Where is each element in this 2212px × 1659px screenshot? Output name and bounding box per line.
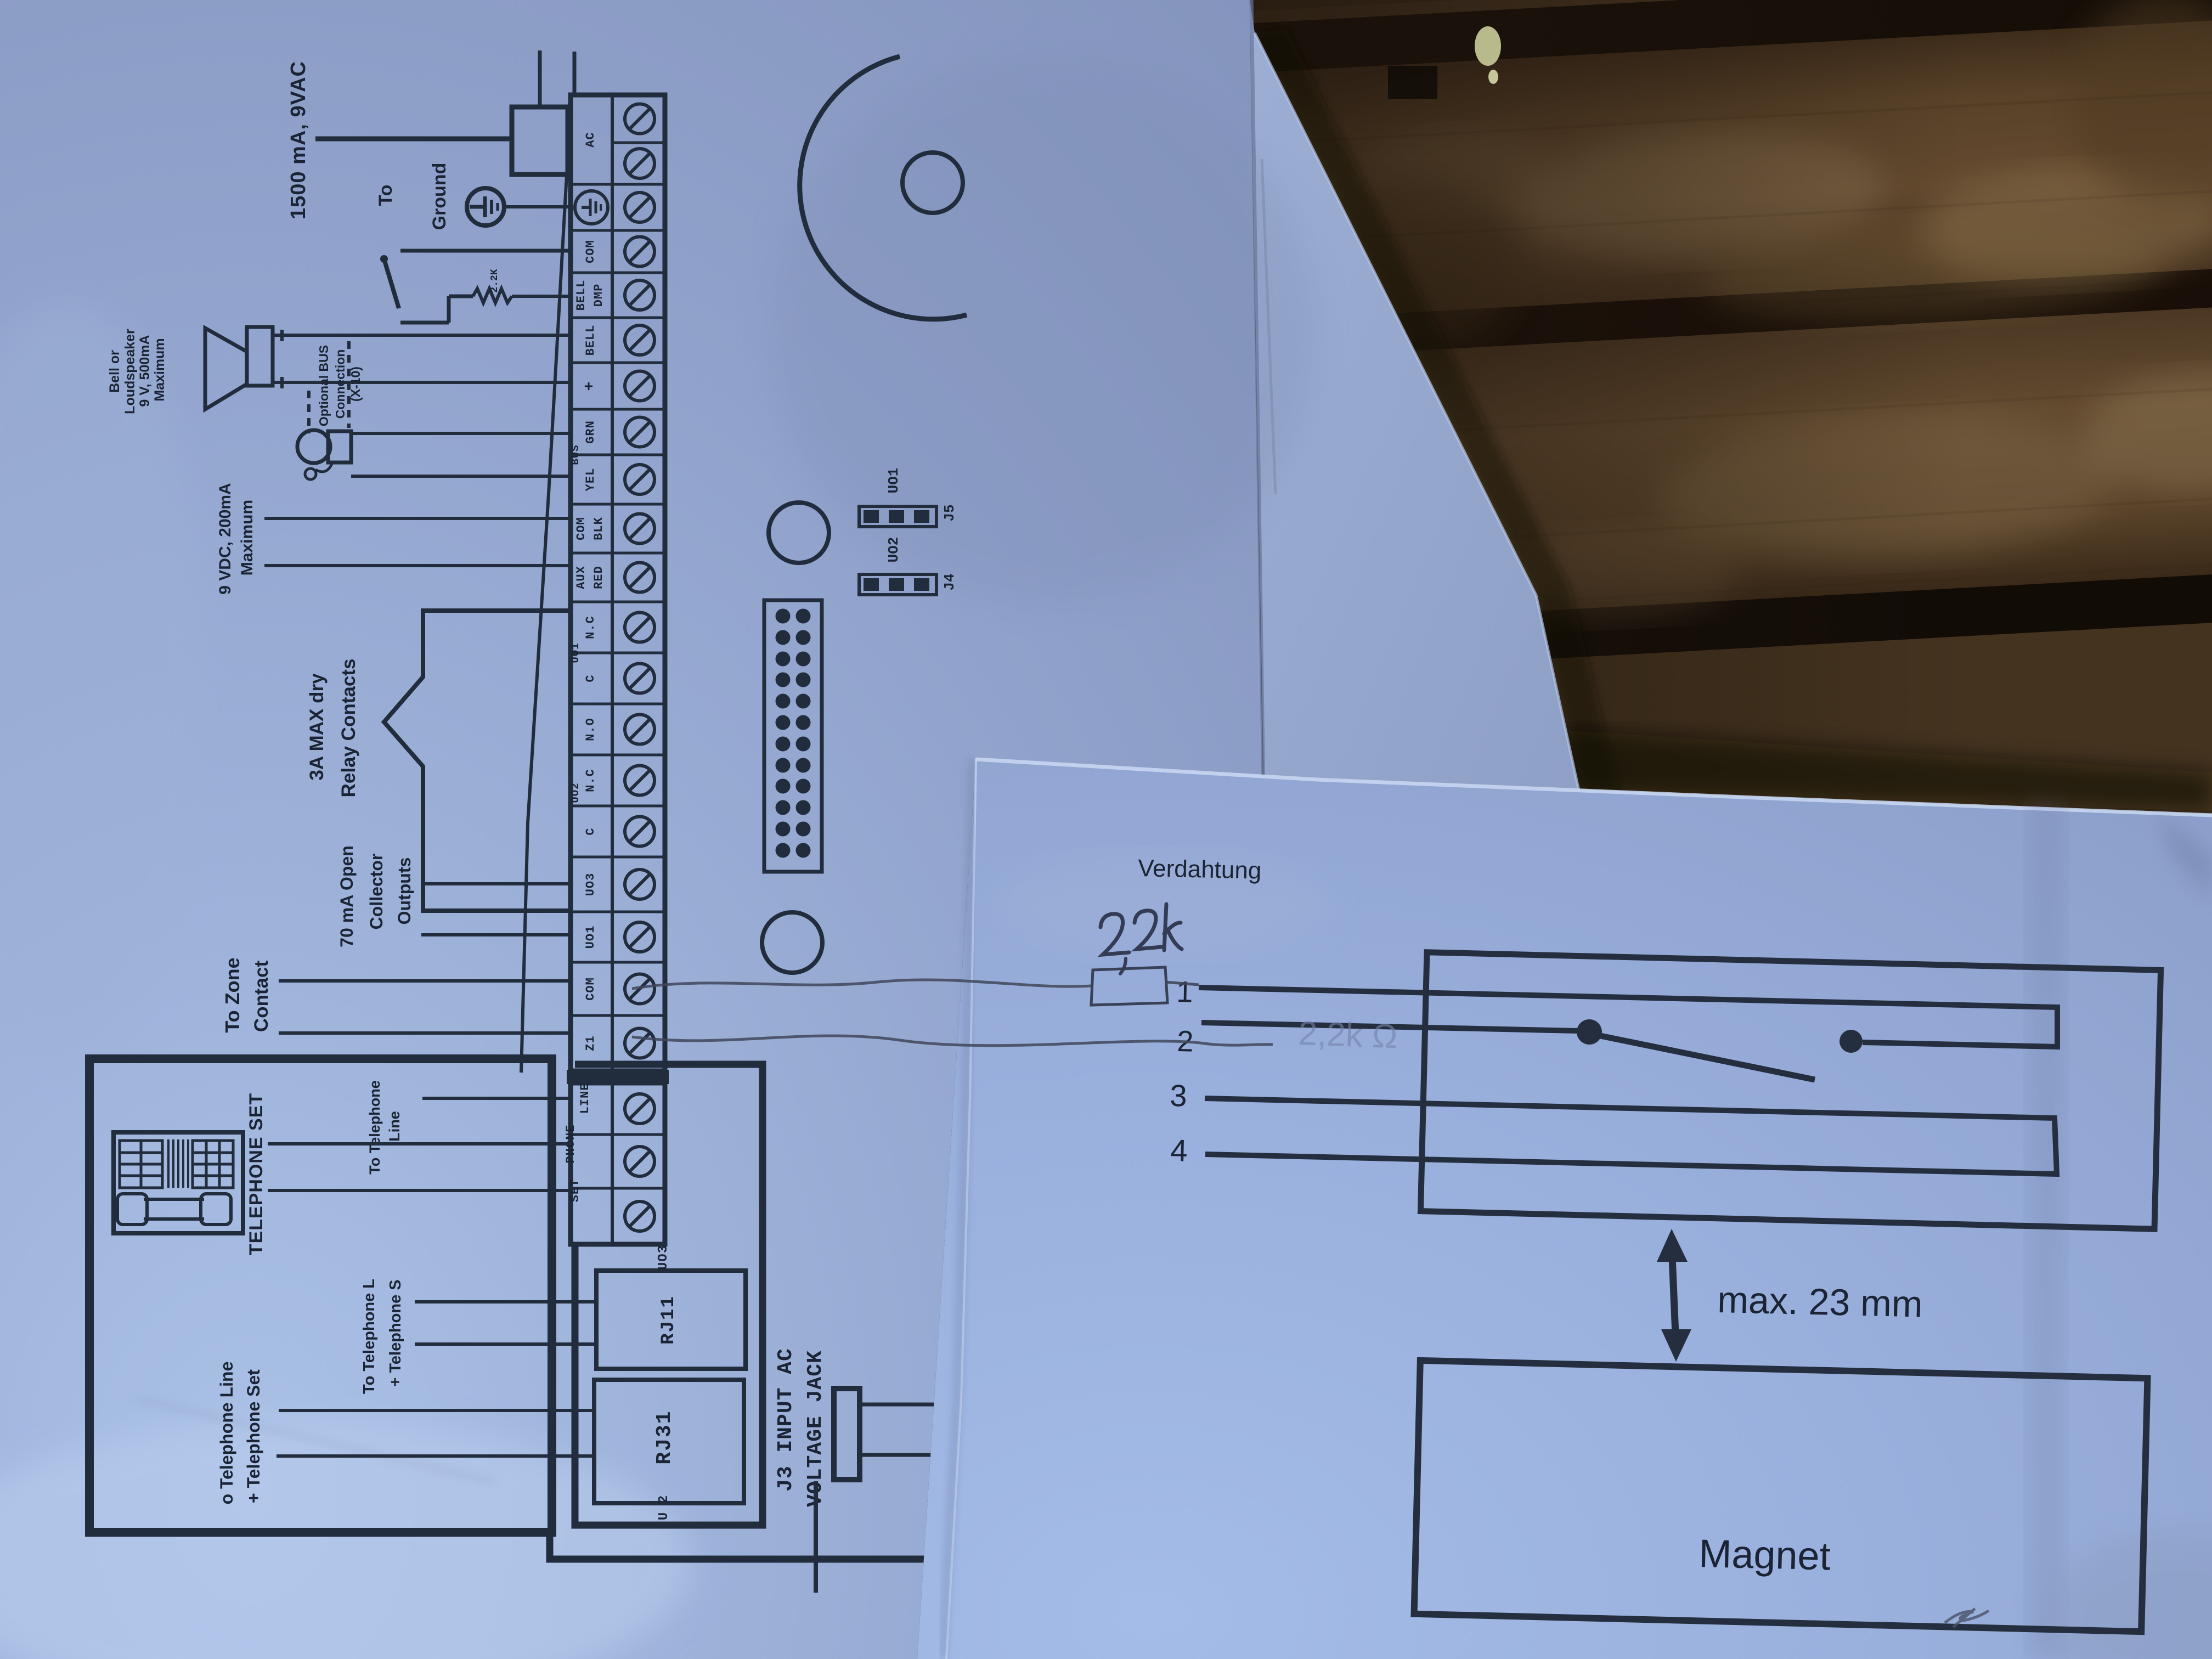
svg-text:+ Telephone S: + Telephone S (387, 1279, 404, 1386)
svg-text:max. 23 mm: max. 23 mm (1717, 1279, 1923, 1325)
svg-text:To: To (375, 184, 396, 206)
svg-text:To Telephone L: To Telephone L (360, 1279, 378, 1394)
svg-text:Verdahtung: Verdahtung (1138, 855, 1262, 884)
svg-text:YEL: YEL (584, 468, 597, 492)
svg-text:C: C (584, 827, 597, 835)
svg-text:COM: COM (584, 977, 597, 1001)
svg-text:J4: J4 (941, 573, 958, 590)
svg-text:BUS: BUS (569, 444, 582, 465)
svg-text:4: 4 (1170, 1133, 1188, 1168)
svg-text:BELL: BELL (584, 325, 597, 356)
svg-text:Line: Line (386, 1111, 403, 1142)
svg-text:C: C (584, 674, 597, 682)
svg-text:BLK: BLK (592, 517, 606, 540)
svg-text:LINE: LINE (578, 1083, 592, 1114)
svg-text:GRN: GRN (584, 420, 597, 444)
svg-text:(X-10): (X-10) (348, 366, 363, 402)
svg-text:RED: RED (592, 566, 606, 589)
svg-text:BELL: BELL (574, 280, 588, 311)
svg-text:Magnet: Magnet (1699, 1532, 1831, 1578)
svg-text:COM: COM (574, 517, 588, 540)
svg-text:1: 1 (1176, 975, 1193, 1009)
svg-text:UO3: UO3 (584, 873, 597, 896)
svg-text:TELEPHONE SET: TELEPHONE SET (246, 1093, 267, 1255)
svg-text:To Zone: To Zone (221, 957, 244, 1032)
svg-text:1500 mA, 9VAC: 1500 mA, 9VAC (287, 61, 310, 219)
svg-text:Outputs: Outputs (394, 857, 414, 925)
svg-text:Z1: Z1 (584, 1035, 597, 1051)
svg-text:AC: AC (584, 132, 597, 147)
svg-text:UO1: UO1 (584, 926, 597, 949)
svg-text:Connection: Connection (333, 349, 347, 419)
svg-text:+: + (582, 381, 599, 391)
svg-text:3: 3 (1170, 1078, 1187, 1113)
svg-text:Ground: Ground (429, 163, 450, 230)
svg-text:AUX: AUX (574, 566, 588, 589)
svg-text:UO2: UO2 (885, 537, 902, 563)
svg-text:UO1: UO1 (569, 642, 582, 663)
svg-text:RJ11: RJ11 (658, 1295, 679, 1345)
svg-text:Bell or: Bell or (107, 350, 122, 393)
svg-text:9 V, 500mA: 9 V, 500mA (137, 335, 153, 407)
svg-text:UO1: UO1 (885, 468, 902, 494)
svg-text:Maximum: Maximum (152, 338, 167, 401)
svg-text:Optional BUS: Optional BUS (317, 345, 331, 426)
svg-text:Contact: Contact (251, 961, 272, 1032)
svg-text:o Telephone Line: o Telephone Line (217, 1362, 236, 1505)
svg-text:2,2k Ω: 2,2k Ω (1298, 1014, 1398, 1056)
svg-text:J5: J5 (941, 504, 958, 521)
svg-text:UO3: UO3 (656, 1245, 671, 1270)
svg-text:UO2: UO2 (569, 782, 582, 803)
svg-text:2.2K: 2.2K (489, 269, 500, 292)
svg-text:Maximum: Maximum (238, 500, 256, 575)
svg-text:J3 INPUT AC: J3 INPUT AC (774, 1348, 798, 1492)
svg-text:Collector: Collector (366, 854, 386, 930)
svg-text:N.O: N.O (584, 718, 597, 741)
svg-text:70 mA Open: 70 mA Open (337, 845, 357, 947)
svg-text:Relay Contacts: Relay Contacts (338, 659, 359, 798)
svg-text:9 VDC, 200mA: 9 VDC, 200mA (216, 483, 234, 594)
svg-text:N.C: N.C (584, 769, 597, 792)
svg-text:To Telephone: To Telephone (366, 1080, 383, 1175)
svg-text:RJ31: RJ31 (653, 1410, 676, 1464)
svg-text:U 2: U 2 (657, 1495, 672, 1520)
svg-text:Loudspeaker: Loudspeaker (122, 329, 138, 414)
svg-text:+ Telephone Set: + Telephone Set (244, 1369, 263, 1503)
svg-text:DMP: DMP (592, 284, 606, 307)
svg-text:N.C: N.C (584, 616, 597, 639)
svg-text:COM: COM (584, 240, 597, 263)
svg-text:3A MAX dry: 3A MAX dry (306, 673, 328, 781)
